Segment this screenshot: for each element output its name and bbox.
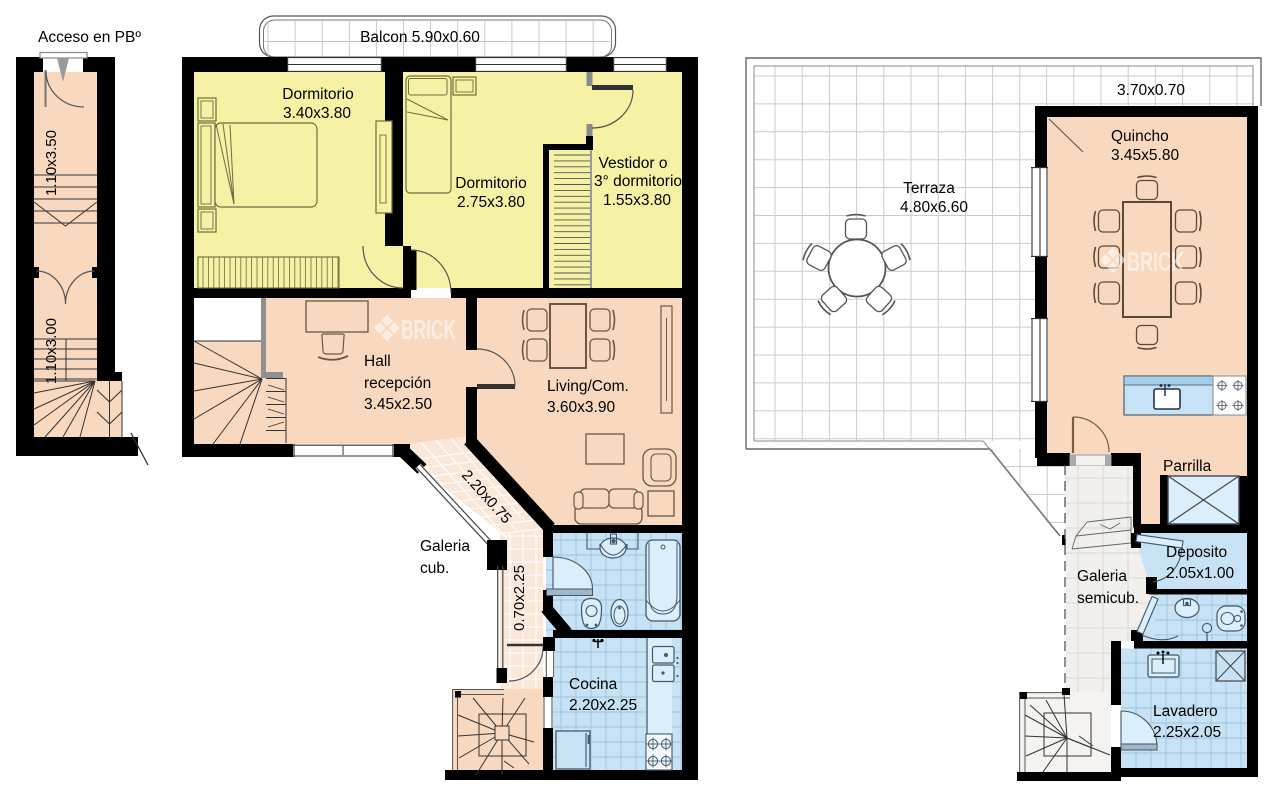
- svg-text:1.10x3.00: 1.10x3.00: [43, 318, 60, 384]
- svg-text:3.45x5.80: 3.45x5.80: [1111, 147, 1179, 164]
- svg-text:2.25x2.05: 2.25x2.05: [1153, 724, 1221, 741]
- svg-text:Dormitorio: Dormitorio: [282, 86, 353, 103]
- svg-text:3.70x0.70: 3.70x0.70: [1117, 82, 1185, 99]
- svg-text:cub.: cub.: [420, 560, 449, 577]
- svg-text:Terraza: Terraza: [903, 180, 955, 197]
- svg-text:BRICK: BRICK: [1127, 246, 1184, 277]
- svg-text:Quincho: Quincho: [1111, 128, 1169, 145]
- svg-text:3° dormitorio: 3° dormitorio: [594, 173, 682, 190]
- svg-text:Living/Com.: Living/Com.: [547, 378, 629, 395]
- svg-text:Galeria: Galeria: [1077, 568, 1127, 585]
- svg-text:Lavadero: Lavadero: [1153, 703, 1218, 720]
- svg-text:BRICK: BRICK: [401, 314, 456, 345]
- svg-text:Cocina: Cocina: [569, 676, 618, 693]
- svg-text:0.70x2.25: 0.70x2.25: [511, 565, 528, 631]
- svg-text:2.20x2.25: 2.20x2.25: [569, 697, 637, 714]
- svg-text:1.10x3.50: 1.10x3.50: [43, 130, 60, 196]
- svg-text:1.55x3.80: 1.55x3.80: [603, 192, 671, 209]
- svg-text:2.75x3.80: 2.75x3.80: [457, 194, 525, 211]
- svg-text:Galeria: Galeria: [420, 538, 470, 555]
- svg-text:2.05x1.00: 2.05x1.00: [1166, 565, 1234, 582]
- svg-text:Deposito: Deposito: [1166, 544, 1227, 561]
- svg-text:Parrilla: Parrilla: [1163, 458, 1212, 475]
- svg-text:3.60x3.90: 3.60x3.90: [547, 399, 615, 416]
- svg-text:recepción: recepción: [364, 375, 431, 392]
- svg-text:Acceso en PBº: Acceso en PBº: [38, 29, 141, 46]
- svg-text:3.45x2.50: 3.45x2.50: [364, 396, 432, 413]
- svg-text:Hall: Hall: [364, 353, 391, 370]
- svg-text:3.40x3.80: 3.40x3.80: [283, 105, 351, 122]
- svg-text:Vestidor o: Vestidor o: [599, 155, 668, 172]
- svg-text:Dormitorio: Dormitorio: [455, 175, 526, 192]
- svg-text:semicub.: semicub.: [1077, 590, 1139, 607]
- svg-text:4.80x6.60: 4.80x6.60: [900, 199, 968, 216]
- svg-text:Balcon 5.90x0.60: Balcon 5.90x0.60: [360, 29, 480, 46]
